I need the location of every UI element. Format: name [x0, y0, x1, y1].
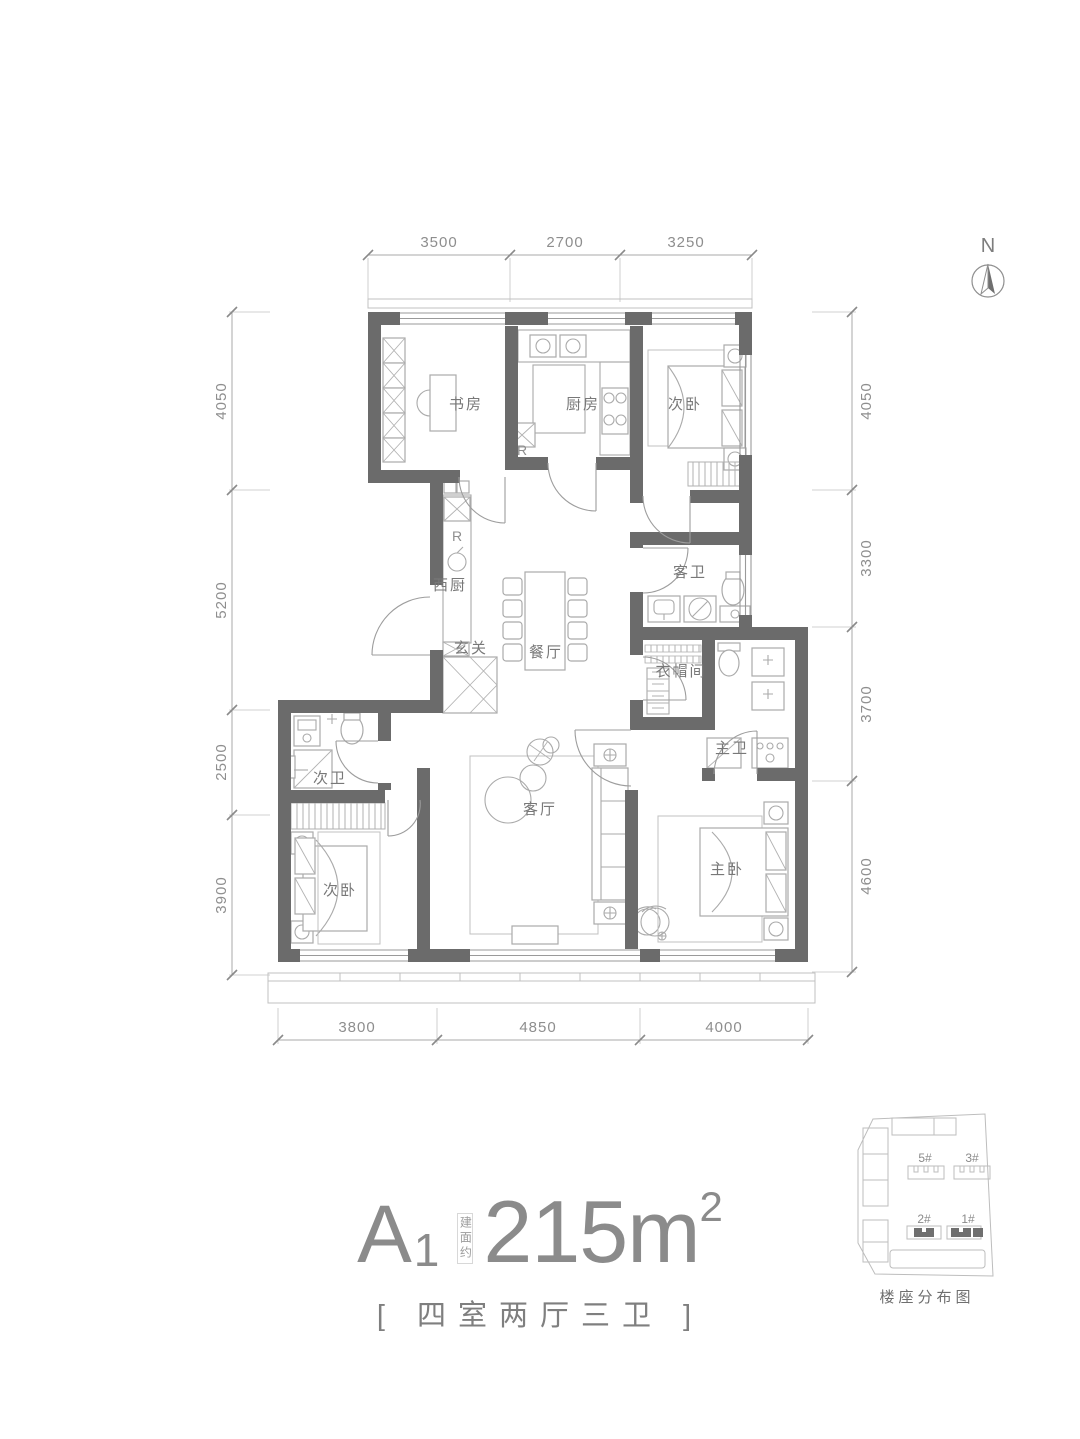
room-label-guest-bath: 客卫	[673, 564, 707, 581]
west-kitchen-furniture	[443, 481, 471, 643]
room-label-cloakroom: 衣帽间	[655, 663, 706, 680]
room-label-dining: 餐厅	[529, 644, 563, 661]
room-label-study: 书房	[449, 396, 483, 413]
north-needle-light	[981, 264, 988, 294]
dim-left-2: 5200	[213, 581, 230, 618]
floorplan-page: { "north": {"label": "N"}, "dims": { "to…	[0, 0, 1080, 1439]
room-label-bedroom-top: 次卧	[668, 396, 702, 413]
dim-right-2: 3300	[858, 539, 875, 576]
unit-number: 1	[414, 1227, 440, 1273]
dim-bottom-2: 4850	[519, 1019, 556, 1036]
dim-right-1: 4050	[858, 382, 875, 419]
bedroom-top-furniture	[648, 345, 746, 486]
room-label-bedroom-left: 次卧	[323, 882, 357, 899]
area-superscript: 2	[700, 1186, 723, 1228]
dim-left-1: 4050	[213, 382, 230, 419]
north-needle-dark	[988, 264, 995, 294]
dim-bottom-3: 4000	[705, 1019, 742, 1036]
room-label-master-bedroom: 主卧	[710, 861, 744, 878]
area-note: 建面约	[457, 1213, 473, 1264]
fridge-label-west-kitchen: R	[452, 528, 462, 544]
dim-top-3: 3250	[667, 234, 704, 251]
siteplan-caption: 楼座分布图	[879, 1289, 974, 1306]
building-3-label: 3#	[965, 1151, 979, 1165]
study-furniture	[383, 338, 456, 462]
dim-top-1: 3500	[420, 234, 457, 251]
room-label-west-kitchen: 西厨	[433, 577, 467, 594]
building-5-label: 5#	[918, 1151, 932, 1165]
balcony-band	[268, 973, 815, 1003]
unit-title: A 1 建面约 215m 2	[300, 1188, 780, 1276]
dim-right-3: 3700	[858, 685, 875, 722]
dim-top-2: 2700	[546, 234, 583, 251]
unit-name: A	[357, 1194, 412, 1276]
siteplan: 5# 3# 2# 1# 楼座分布图	[858, 1114, 993, 1306]
room-label-second-bath: 次卫	[313, 770, 347, 787]
dim-bottom-1: 3800	[338, 1019, 375, 1036]
kitchen-furniture	[509, 330, 630, 455]
layout-subtitle: [ 四室两厅三卫 ]	[300, 1292, 780, 1334]
room-label-foyer: 玄关	[454, 640, 488, 657]
north-arrow: N	[972, 235, 1004, 297]
area-value: 215m	[483, 1188, 699, 1276]
title-block: A 1 建面约 215m 2 [ 四室两厅三卫 ]	[300, 1188, 780, 1334]
dim-left-3: 2500	[213, 743, 230, 780]
room-label-living: 客厅	[523, 801, 557, 818]
bedroom-left-furniture	[291, 803, 385, 944]
fridge-label-kitchen: R	[517, 442, 527, 458]
building-2-label: 2#	[917, 1212, 931, 1226]
north-label: N	[981, 235, 995, 257]
room-label-master-bath: 主卫	[715, 740, 749, 757]
room-label-kitchen: 厨房	[566, 396, 600, 413]
dim-left-4: 3900	[213, 876, 230, 913]
building-1-label: 1#	[961, 1212, 975, 1226]
dim-right-4: 4600	[858, 857, 875, 894]
